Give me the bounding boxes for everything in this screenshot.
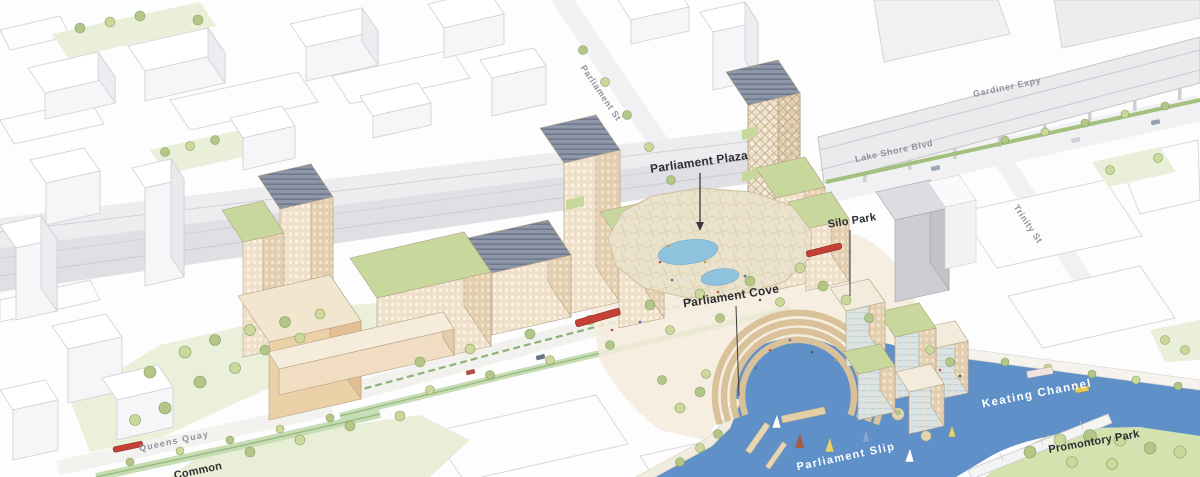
site-plan-screenshot: Parliament St Gardiner Expy Lake Shore B… [0,0,1200,477]
plaza-canopy [608,188,812,298]
site-plan-illustration [0,0,1200,477]
